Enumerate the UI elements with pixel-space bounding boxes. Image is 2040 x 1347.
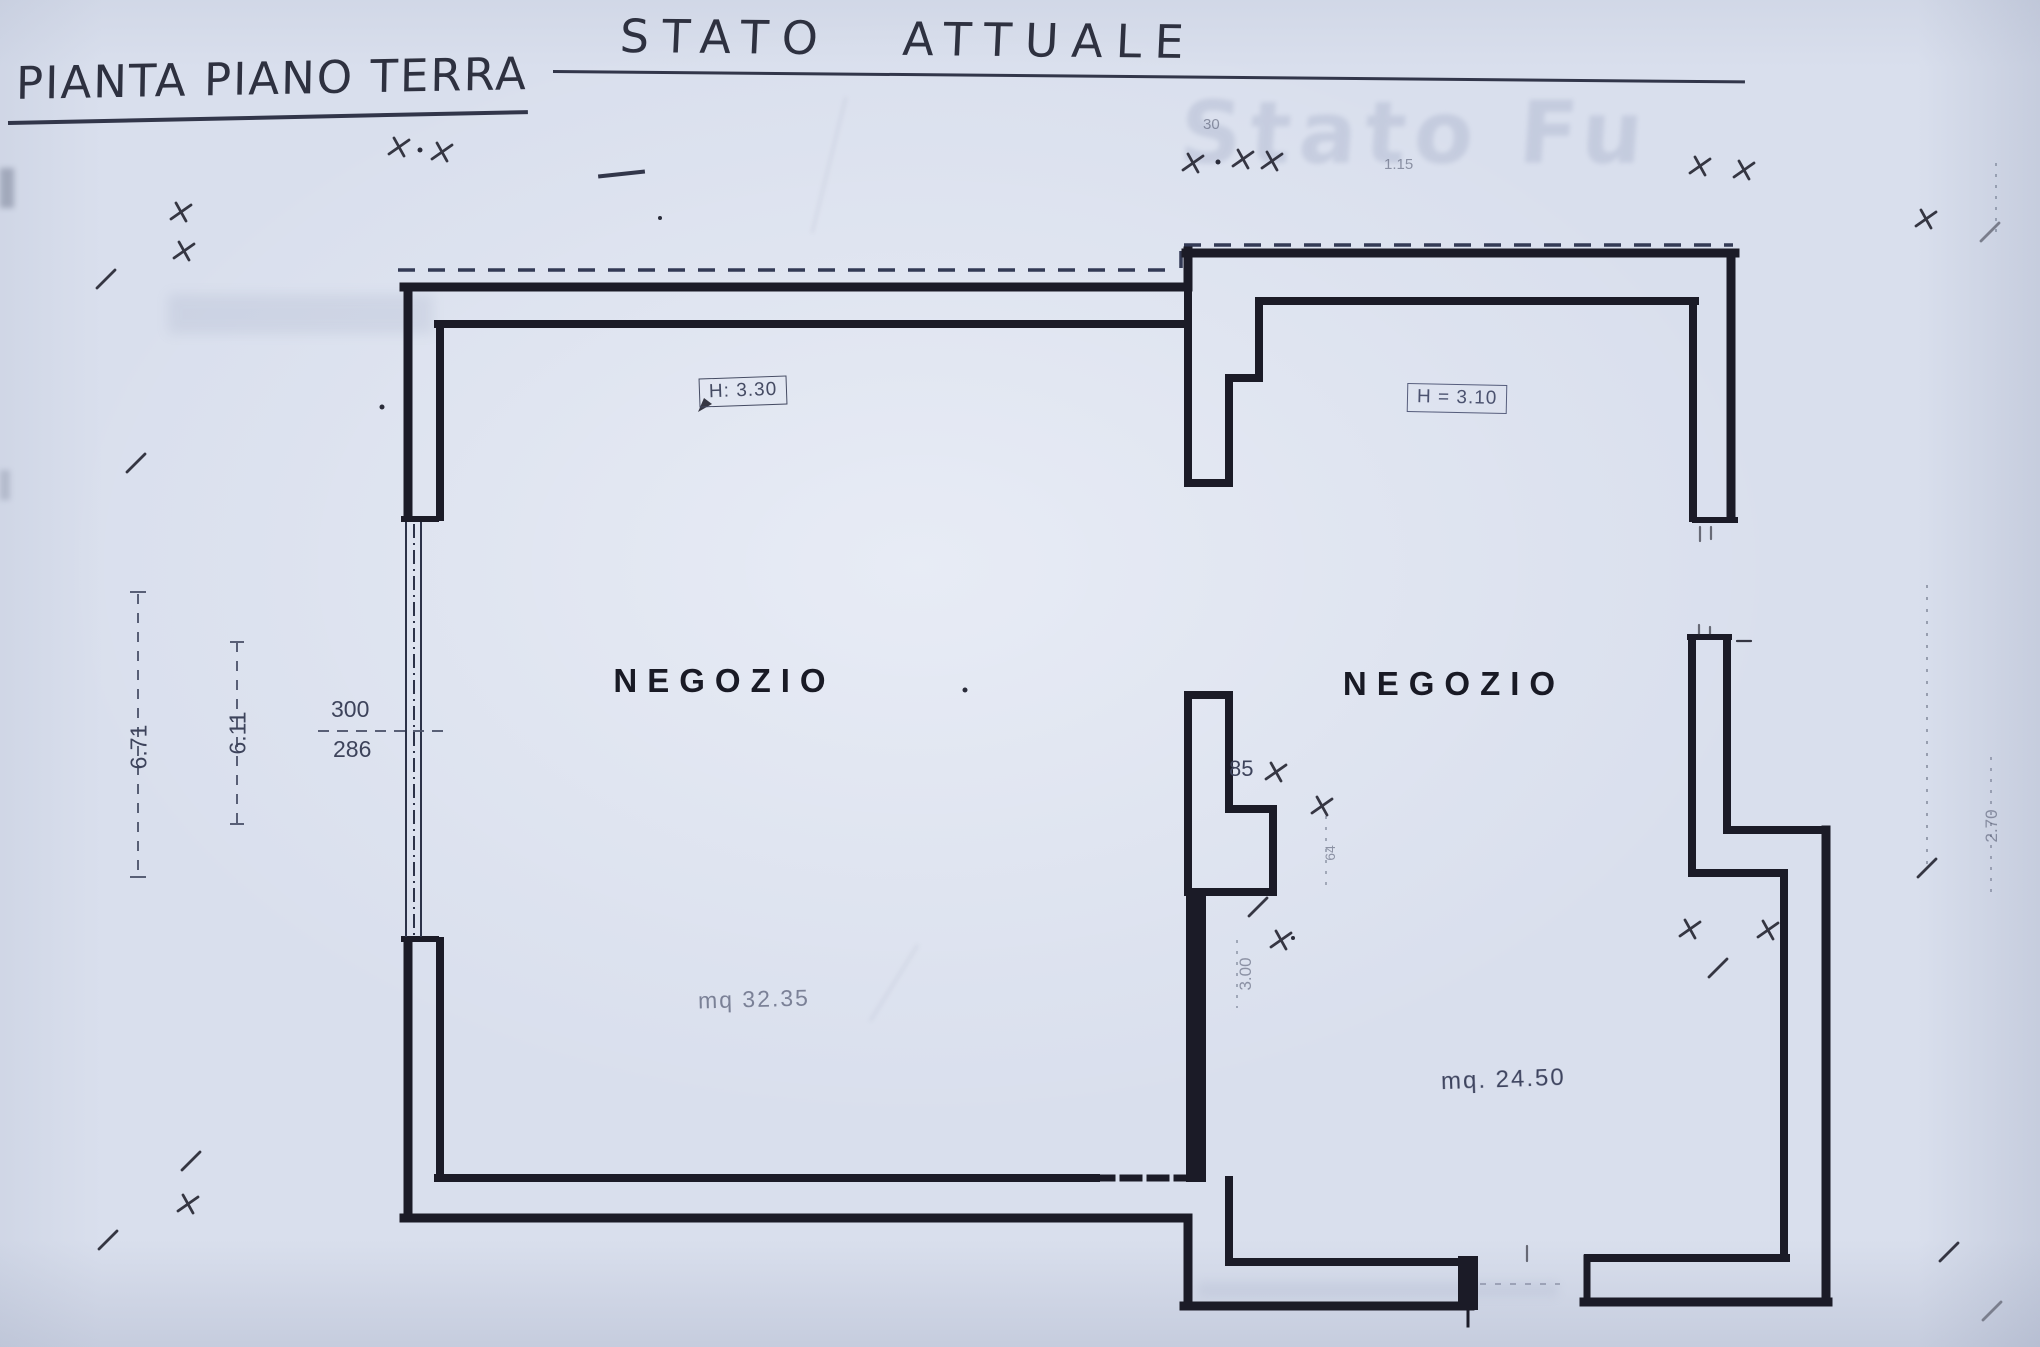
- ink-dots: [380, 148, 1296, 941]
- dimension-opening-upper: 300: [331, 696, 369, 723]
- floor-plan-drawing: [0, 0, 2040, 1347]
- solid-wall-fill: [1186, 890, 1206, 1182]
- height-label-left: H: 3.30: [699, 375, 788, 407]
- dimension-niche: 85: [1229, 756, 1253, 782]
- dimension-step-right: 64: [1322, 845, 1338, 861]
- room-area-right: mq. 24.50: [1441, 1064, 1567, 1096]
- height-label-right: H = 3.10: [1407, 383, 1508, 414]
- scanned-floor-plan-page: Stato Fu: [0, 0, 2040, 1347]
- state-title: STATO ATTUALE: [619, 9, 1198, 69]
- dimension-right-side: 2.70: [1982, 809, 2002, 842]
- dimension-faint-b: 1.15: [1384, 156, 1413, 173]
- height-value: H: 3.30: [709, 379, 778, 402]
- shop-window-lines: [406, 522, 421, 937]
- dimension-opening-lower: 286: [333, 736, 371, 763]
- room-name-right: NEGOZIO: [1340, 665, 1568, 703]
- dimension-outer-width: 6.71: [126, 725, 153, 770]
- room-area-left: mq 32.35: [698, 985, 811, 1015]
- left-shop-walls: [404, 287, 1188, 1218]
- height-value: H = 3.10: [1417, 386, 1498, 409]
- dimension-faint-a: 30: [1203, 116, 1220, 133]
- tick-marks: [97, 138, 2001, 1320]
- room-name-left: NEGOZIO: [612, 662, 837, 700]
- plan-title: PIANTA PIANO TERRA: [16, 47, 529, 110]
- solid-wall-fill: [1458, 1256, 1478, 1310]
- dimension-inner-width: 6.11: [225, 711, 252, 754]
- dimension-wall-segment: 3.00: [1236, 957, 1256, 990]
